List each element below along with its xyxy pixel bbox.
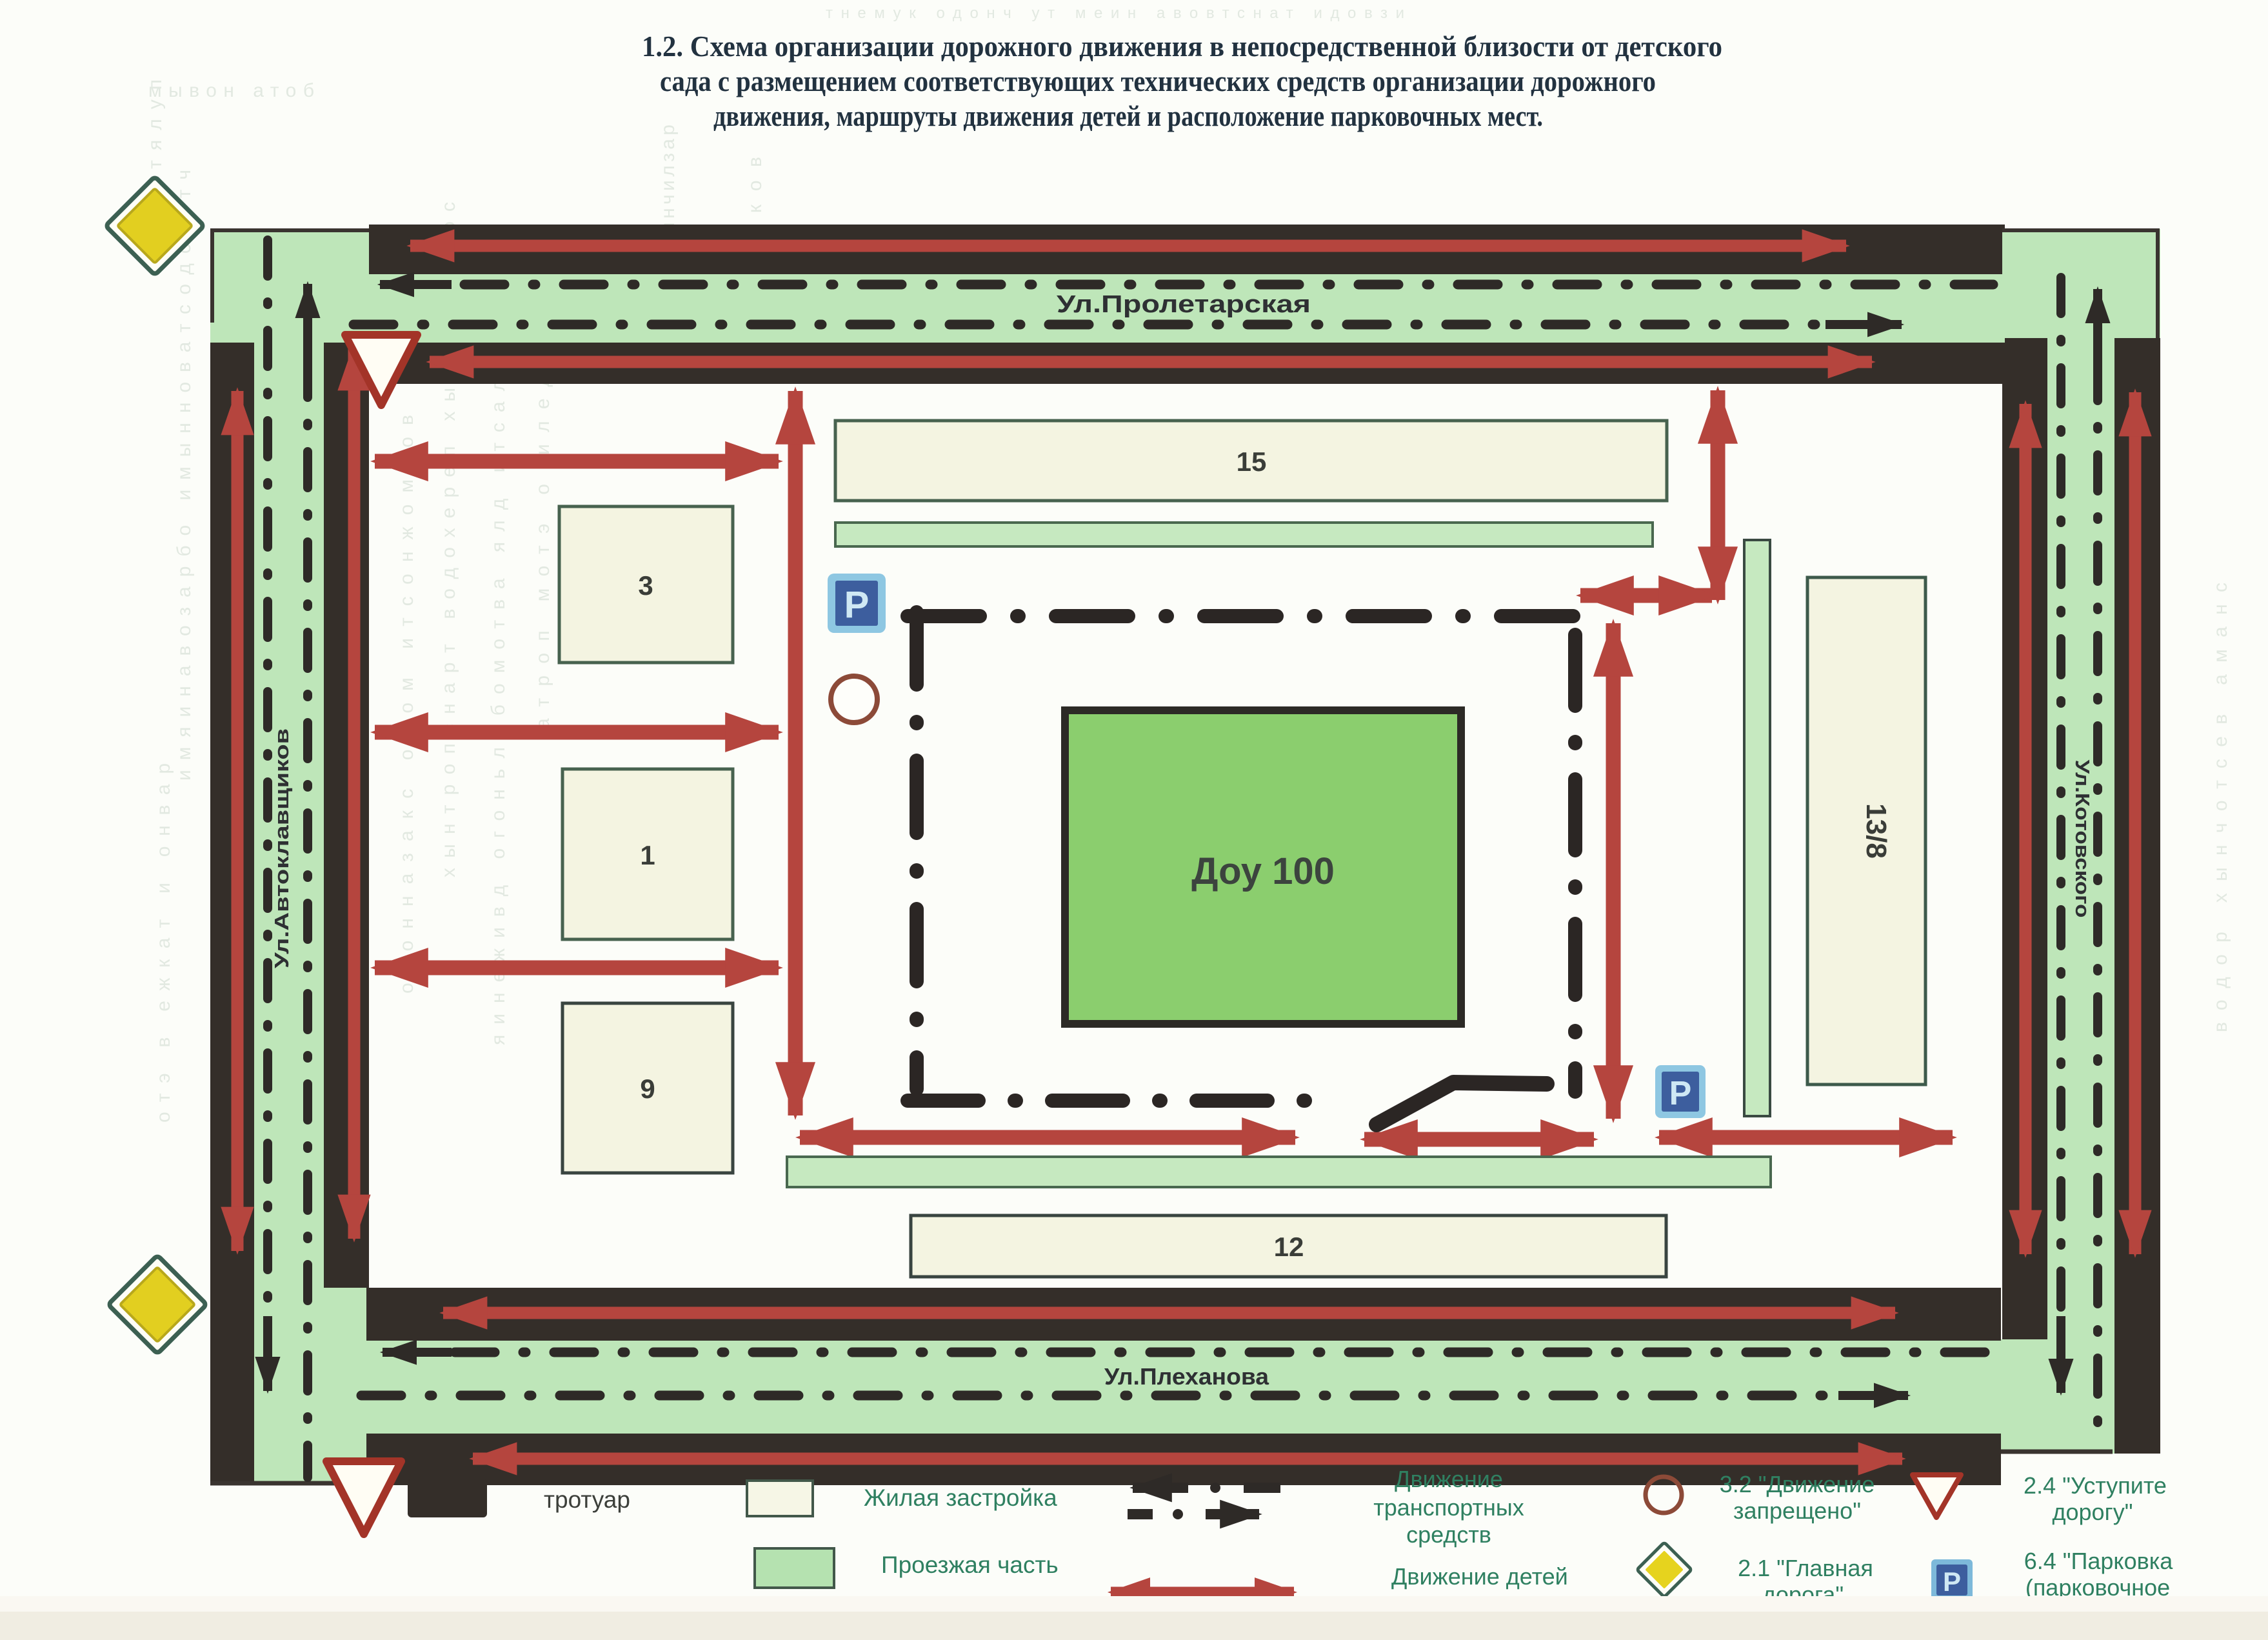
svg-text:6.4 "Парковка: 6.4 "Парковка [2024, 1548, 2174, 1574]
svg-text:Движение: Движение [1395, 1466, 1503, 1492]
svg-text:Движение детей: Движение детей [1391, 1563, 1568, 1590]
svg-text:Доу 100: Доу 100 [1191, 850, 1335, 892]
svg-text:P: P [844, 584, 870, 626]
svg-text:2.1 "Главная: 2.1 "Главная [1738, 1555, 1873, 1581]
svg-text:сада с размещением соответству: сада с размещением соответствующих техни… [660, 65, 1656, 97]
svg-text:Ул.Автоклавщиков: Ул.Автоклавщиков [270, 728, 293, 968]
svg-text:тротуар: тротуар [544, 1486, 630, 1513]
svg-text:Проезжая часть: Проезжая часть [881, 1552, 1059, 1578]
svg-text:2.4 "Уступите: 2.4 "Уступите [2024, 1472, 2167, 1499]
svg-text:средств: средств [1406, 1521, 1491, 1548]
svg-text:Жилая застройка: Жилая застройка [864, 1485, 1057, 1511]
svg-text:P: P [1669, 1075, 1692, 1112]
svg-text:12: 12 [1274, 1232, 1304, 1262]
svg-text:P: P [1943, 1566, 1961, 1597]
svg-text:дорогу": дорогу" [2053, 1499, 2133, 1525]
svg-text:Ул.Котовского: Ул.Котовского [2071, 760, 2094, 918]
svg-text:транспортных: транспортных [1373, 1494, 1524, 1521]
svg-text:15: 15 [1237, 446, 1267, 477]
svg-text:3: 3 [638, 570, 653, 601]
svg-text:запрещено": запрещено" [1733, 1497, 1861, 1524]
svg-text:мывон атоб: мывон атоб [148, 80, 316, 101]
svg-text:тнемук одонч ут меин авовтснат: тнемук одонч ут меин авовтснат идовзи [826, 5, 1406, 22]
svg-text:Ул.Пролетарская: Ул.Пролетарская [1057, 291, 1311, 318]
svg-text:Ул.Плеханова: Ул.Плеханова [1104, 1363, 1269, 1390]
svg-text:1.2. Схема организации дорожно: 1.2. Схема организации дорожного движени… [642, 30, 1722, 63]
svg-text:13/8: 13/8 [1860, 803, 1892, 859]
svg-text:3.2 "Движение: 3.2 "Движение [1720, 1471, 1875, 1497]
svg-text:1: 1 [640, 840, 655, 870]
svg-text:9: 9 [640, 1074, 655, 1104]
svg-text:водор хынчотсев аманс: водор хынчотсев аманс [2210, 581, 2231, 1032]
svg-text:движения, маршруты движения де: движения, маршруты движения детей и расп… [713, 100, 1543, 132]
